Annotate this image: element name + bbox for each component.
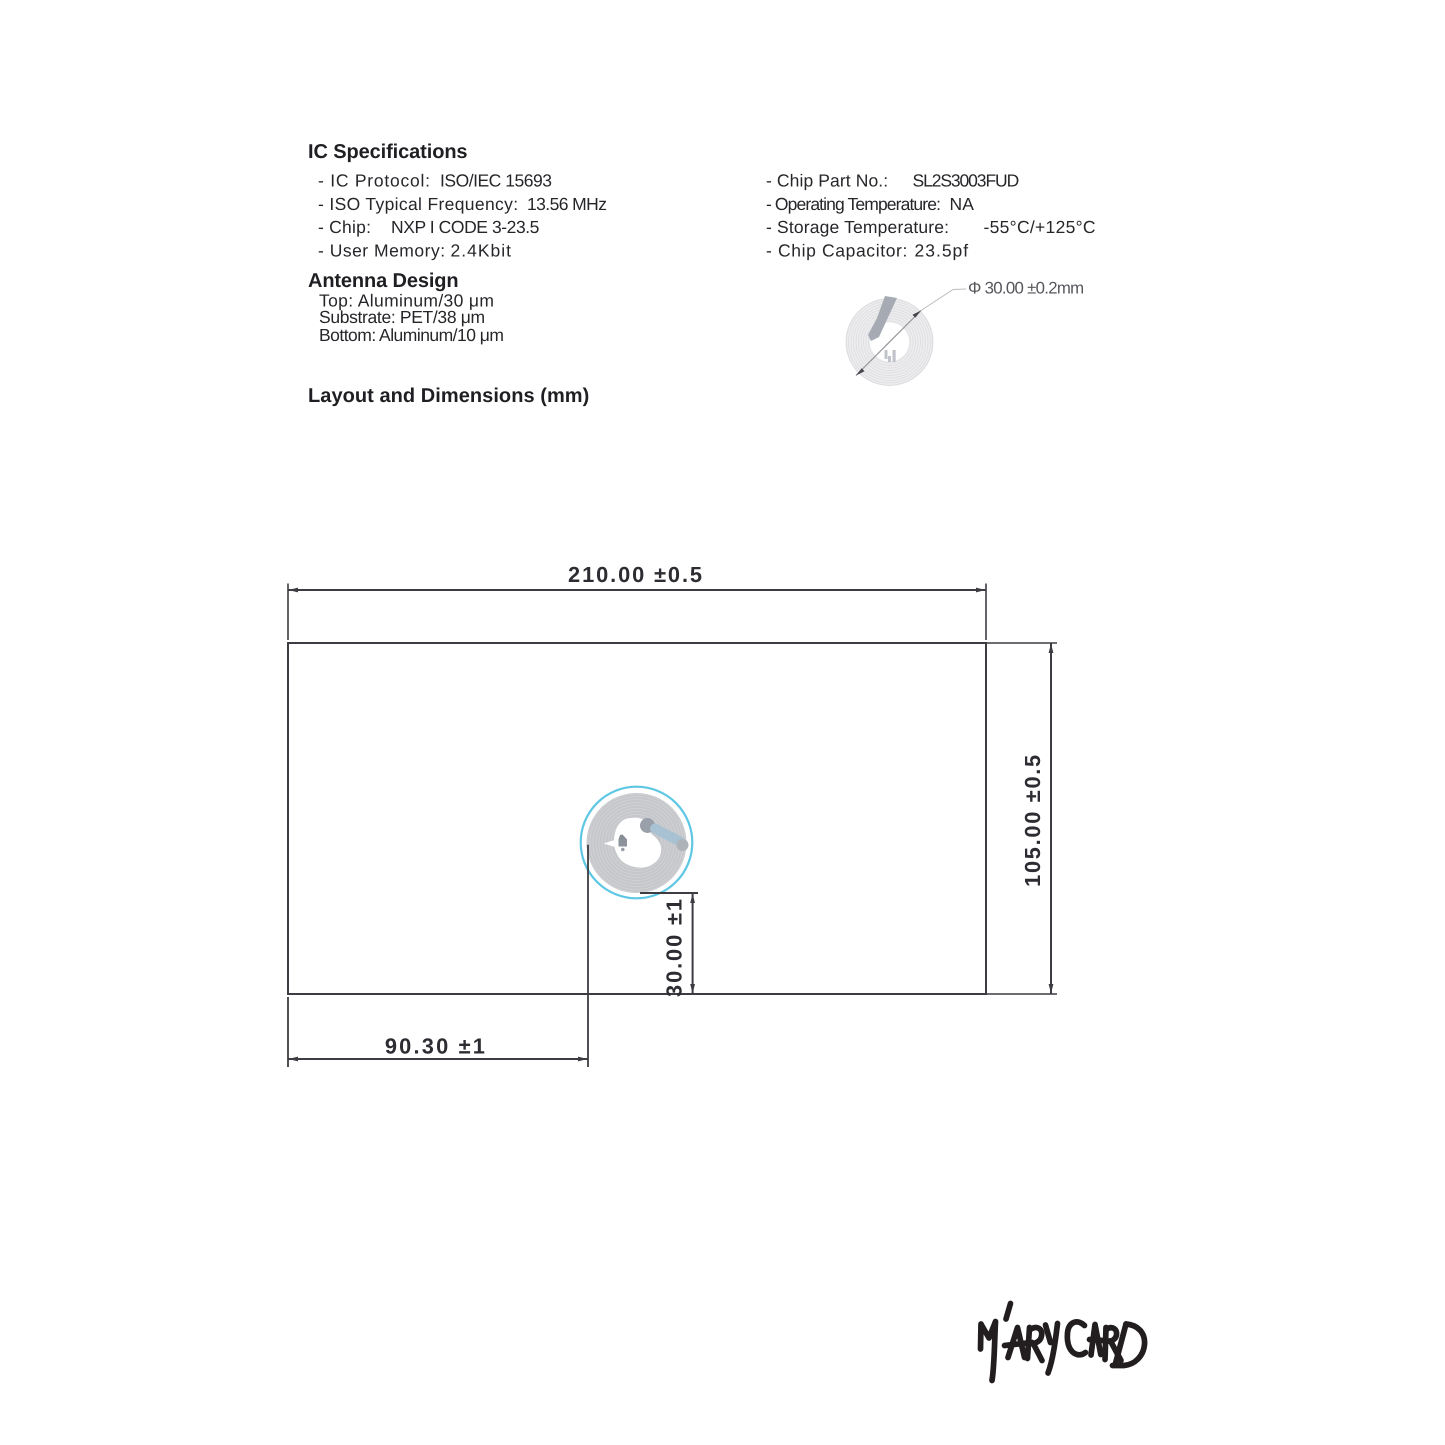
svg-text:90.30 ±1: 90.30 ±1 (385, 1034, 487, 1059)
svg-text:23.5pf: 23.5pf (915, 241, 970, 261)
svg-text:- Chip Part No.:: - Chip Part No.: (766, 170, 888, 190)
svg-text:SL2S3003FUD: SL2S3003FUD (913, 170, 1019, 190)
svg-text:IC Specifications: IC Specifications (308, 141, 467, 163)
svg-text:Bottom: Aluminum/10 μm: Bottom: Aluminum/10 μm (319, 325, 503, 345)
svg-text:- IC Protocol:: - IC Protocol: (318, 170, 431, 190)
svg-text:Antenna Design: Antenna Design (308, 270, 458, 292)
svg-text:NXP I CODE 3-23.5: NXP I CODE 3-23.5 (391, 217, 539, 237)
svg-text:210.00 ±0.5: 210.00 ±0.5 (568, 562, 704, 587)
svg-text:- Chip Capacitor:: - Chip Capacitor: (766, 241, 908, 261)
svg-text:- Chip:: - Chip: (318, 217, 371, 237)
svg-text:2.4Kbit: 2.4Kbit (451, 241, 512, 261)
svg-text:NA: NA (950, 194, 975, 214)
svg-text:- User Memory:: - User Memory: (318, 241, 446, 261)
svg-text:13.56 MHz: 13.56 MHz (527, 194, 606, 214)
svg-text:Substrate: PET/38 μm: Substrate: PET/38 μm (319, 307, 485, 327)
svg-text:Layout and Dimensions (mm): Layout and Dimensions (mm) (308, 385, 589, 407)
svg-text:-55°C/+125°C: -55°C/+125°C (984, 217, 1096, 237)
svg-text:- Operating Temperature:: - Operating Temperature: (766, 194, 940, 214)
svg-text:30.00 ±1: 30.00 ±1 (662, 897, 687, 997)
svg-text:Φ 30.00 ±0.2mm: Φ 30.00 ±0.2mm (968, 279, 1083, 298)
svg-text:- Storage Temperature:: - Storage Temperature: (766, 217, 949, 237)
svg-text:ISO/IEC 15693: ISO/IEC 15693 (440, 170, 551, 190)
svg-text:- ISO Typical Frequency:: - ISO Typical Frequency: (318, 194, 518, 214)
svg-text:105.00 ±0.5: 105.00 ±0.5 (1020, 753, 1045, 887)
